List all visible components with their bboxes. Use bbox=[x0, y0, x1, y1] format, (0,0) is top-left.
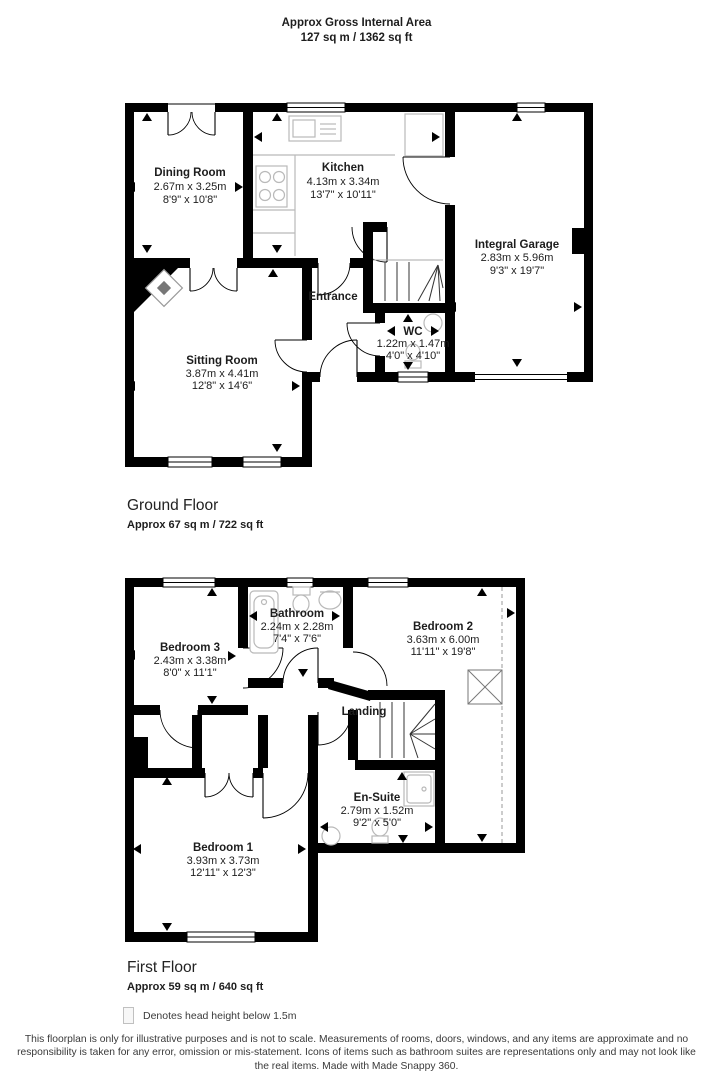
dining-room-name: Dining Room bbox=[154, 167, 226, 179]
double-doors-dining-sitting bbox=[190, 268, 237, 291]
door-bathroom bbox=[283, 648, 318, 683]
window-bedroom2 bbox=[368, 578, 408, 587]
rooflight-icon bbox=[468, 670, 502, 704]
stairs-first bbox=[380, 702, 435, 758]
wc-name: WC bbox=[403, 326, 422, 338]
stove-icon bbox=[256, 166, 287, 207]
kitchen-name: Kitchen bbox=[322, 162, 364, 174]
disclaimer: This floorplan is only for illustrative … bbox=[14, 1033, 699, 1073]
garage-door bbox=[475, 375, 567, 380]
bedroom1-metric: 3.93m x 3.73m bbox=[187, 855, 260, 867]
window-sitting-1 bbox=[168, 457, 212, 467]
landing-name: Landing bbox=[342, 706, 387, 718]
bathroom-metric: 2.24m x 2.28m bbox=[261, 621, 334, 633]
shower-icon bbox=[404, 772, 434, 806]
bathroom-name: Bathroom bbox=[270, 608, 324, 620]
window-garage-top bbox=[517, 103, 545, 112]
door-sitting bbox=[275, 340, 307, 372]
door-garage bbox=[403, 157, 450, 204]
window-bedroom1 bbox=[187, 932, 255, 942]
bedroom3-name: Bedroom 3 bbox=[160, 642, 220, 654]
bathroom-basin-icon bbox=[319, 591, 341, 609]
floorplan-svg: Dining Room 2.67m x 3.25m 8'9" x 10'8" K… bbox=[0, 0, 713, 1080]
bedroom2-metric: 3.63m x 6.00m bbox=[407, 634, 480, 646]
window-bathroom bbox=[287, 578, 313, 587]
wc-imperial: 4'0" x 4'10" bbox=[386, 350, 440, 362]
door-bedroom2 bbox=[353, 652, 387, 686]
garage-imperial: 9'3" x 19'7" bbox=[490, 265, 544, 277]
garage-name: Integral Garage bbox=[475, 239, 559, 251]
bedroom3-metric: 2.43m x 3.38m bbox=[154, 655, 227, 667]
bedroom1-name: Bedroom 1 bbox=[193, 842, 254, 854]
window-wc bbox=[398, 372, 428, 382]
entrance-name: Entrance bbox=[308, 291, 357, 303]
wc-metric: 1.22m x 1.47m bbox=[377, 338, 450, 350]
ensuite-imperial: 9'2" x 5'0" bbox=[353, 817, 401, 829]
window-kitchen bbox=[287, 103, 345, 112]
sitting-room-name: Sitting Room bbox=[186, 355, 258, 367]
door-wc bbox=[347, 323, 380, 356]
dining-room-metric: 2.67m x 3.25m bbox=[154, 181, 227, 193]
garage-metric: 2.83m x 5.96m bbox=[481, 252, 554, 264]
ground-floor-title-block: Ground Floor Approx 67 sq m / 722 sq ft bbox=[127, 497, 263, 531]
kitchen-metric: 4.13m x 3.34m bbox=[307, 176, 380, 188]
ground-floor-title: Ground Floor bbox=[127, 497, 263, 515]
dining-room-imperial: 8'9" x 10'8" bbox=[163, 194, 217, 206]
bedroom3-imperial: 8'0" x 11'1" bbox=[163, 667, 216, 679]
front-door bbox=[320, 340, 357, 377]
legend-text: Denotes head height below 1.5m bbox=[143, 1010, 297, 1022]
window-bedroom3 bbox=[163, 578, 215, 587]
wardrobe-doors-bedroom1 bbox=[205, 773, 253, 797]
bedroom2-name: Bedroom 2 bbox=[413, 621, 473, 633]
bathroom-imperial: 7'4" x 7'6" bbox=[273, 633, 321, 645]
sitting-room-imperial: 12'8" x 14'6" bbox=[192, 380, 252, 392]
bedroom2-imperial: 11'11" x 19'8" bbox=[411, 646, 476, 658]
kitchen-imperial: 13'7" x 10'11" bbox=[310, 189, 376, 201]
ensuite-name: En-Suite bbox=[354, 792, 401, 804]
ground-floor-plan: Dining Room 2.67m x 3.25m 8'9" x 10'8" K… bbox=[125, 103, 593, 467]
sink-icon bbox=[289, 116, 341, 141]
window-sitting-2 bbox=[243, 457, 281, 467]
first-floor-title: First Floor bbox=[127, 959, 263, 977]
french-doors-dining bbox=[168, 112, 215, 135]
first-floor-plan: Bedroom 3 2.43m x 3.38m 8'0" x 11'1" Bat… bbox=[125, 578, 525, 942]
door-bedroom1 bbox=[263, 773, 308, 818]
stairs-ground bbox=[373, 260, 443, 301]
sitting-room-metric: 3.87m x 4.41m bbox=[186, 368, 259, 380]
first-floor-area: Approx 59 sq m / 640 sq ft bbox=[127, 981, 263, 993]
first-floor-title-block: First Floor Approx 59 sq m / 640 sq ft bbox=[127, 959, 263, 993]
floorplan-page: { "header": {"title": "Approx Gross Inte… bbox=[0, 0, 713, 1080]
bedroom1-imperial: 12'11" x 12'3" bbox=[190, 867, 256, 879]
ensuite-metric: 2.79m x 1.52m bbox=[341, 805, 414, 817]
legend: Denotes head height below 1.5m bbox=[123, 1007, 297, 1024]
ground-floor-area: Approx 67 sq m / 722 sq ft bbox=[127, 519, 263, 531]
head-height-legend-icon bbox=[123, 1007, 134, 1024]
